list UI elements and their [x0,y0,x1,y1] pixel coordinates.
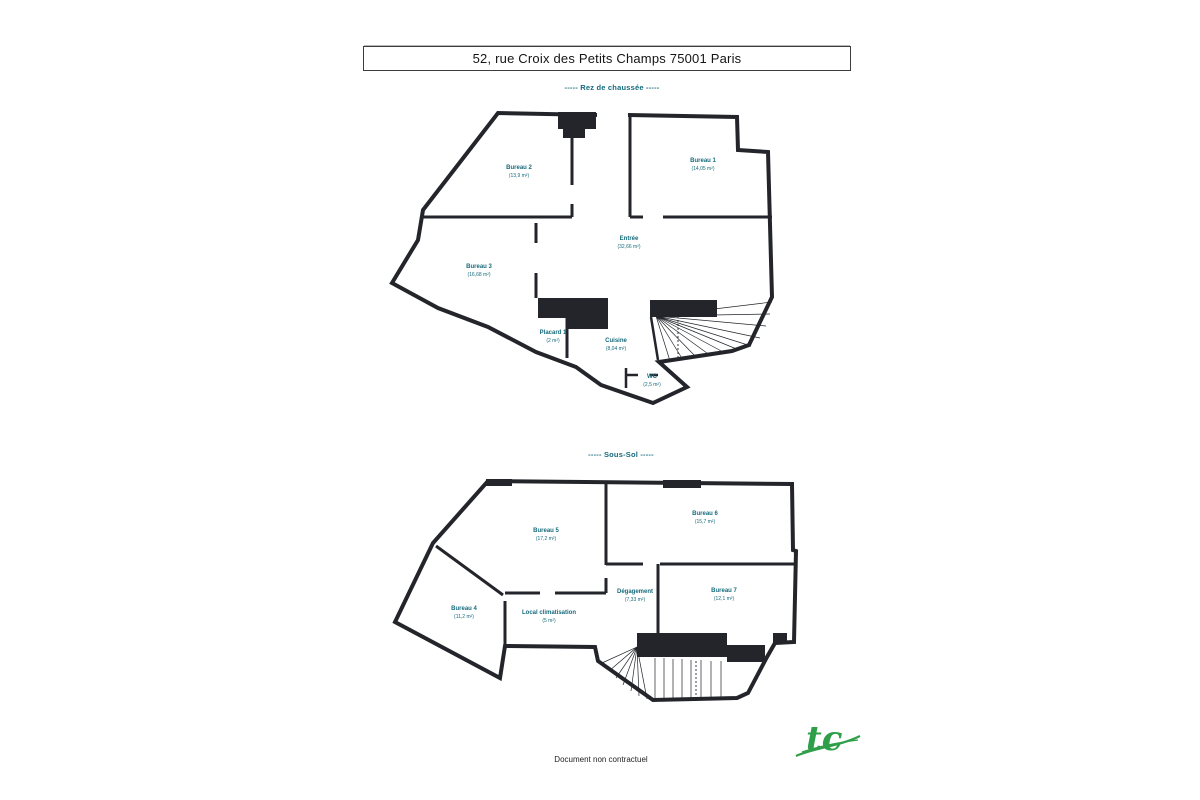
room-label: Bureau 5 (17,2 m²) [533,528,559,542]
floor-title-rez-de-chaussee: ----- Rez de chaussée ----- [565,83,660,92]
room-label: Bureau 2 (13,9 m²) [506,165,532,179]
wall-detail-line [424,117,496,208]
floor-plan-document: 52, rue Croix des Petits Champs 75001 Pa… [0,0,1200,800]
room-label: WC (2,5 m²) [643,374,661,388]
corner-mass [773,633,787,643]
room-label: Bureau 3 (16,68 m²) [466,264,492,278]
wall-bureau4-bureau5 [436,546,503,595]
floor-title-sous-sol: ----- Sous-Sol ----- [588,450,654,459]
door-lintel [486,479,512,486]
structural-mass-center2 [567,316,608,329]
sous-sol-plan [390,465,810,715]
room-label: Placard 1 (2 m²) [540,330,567,344]
stair-left-wall [651,317,658,360]
rez-de-chaussee-plan [380,100,780,410]
room-label: Cuisine (8,04 m²) [605,338,627,352]
agency-logo: tc [792,712,864,766]
logo-text: tc [806,719,843,759]
structural-mass-stair [650,300,717,317]
footer-disclaimer: Document non contractuel [554,755,647,764]
structural-mass-center [538,298,608,318]
stair-landing-mass2 [727,645,765,662]
structural-mass-top2 [563,127,585,138]
address-title: 52, rue Croix des Petits Champs 75001 Pa… [363,46,851,71]
room-label: Dégagement (7,33 m²) [617,589,653,603]
outer-walls [392,113,772,403]
room-label: Entrée (32,66 m²) [617,236,640,250]
room-label: Bureau 1 (14,05 m²) [690,158,716,172]
room-label: Bureau 4 (11,2 m²) [451,606,477,620]
room-label: Bureau 7 (12,1 m²) [711,588,737,602]
stair-landing-mass [637,633,727,657]
door-lintel [663,480,701,488]
room-label: Bureau 6 (15,7 m²) [692,511,718,525]
room-label: Local climatisation (5 m²) [522,610,576,624]
structural-mass-top [558,112,596,129]
